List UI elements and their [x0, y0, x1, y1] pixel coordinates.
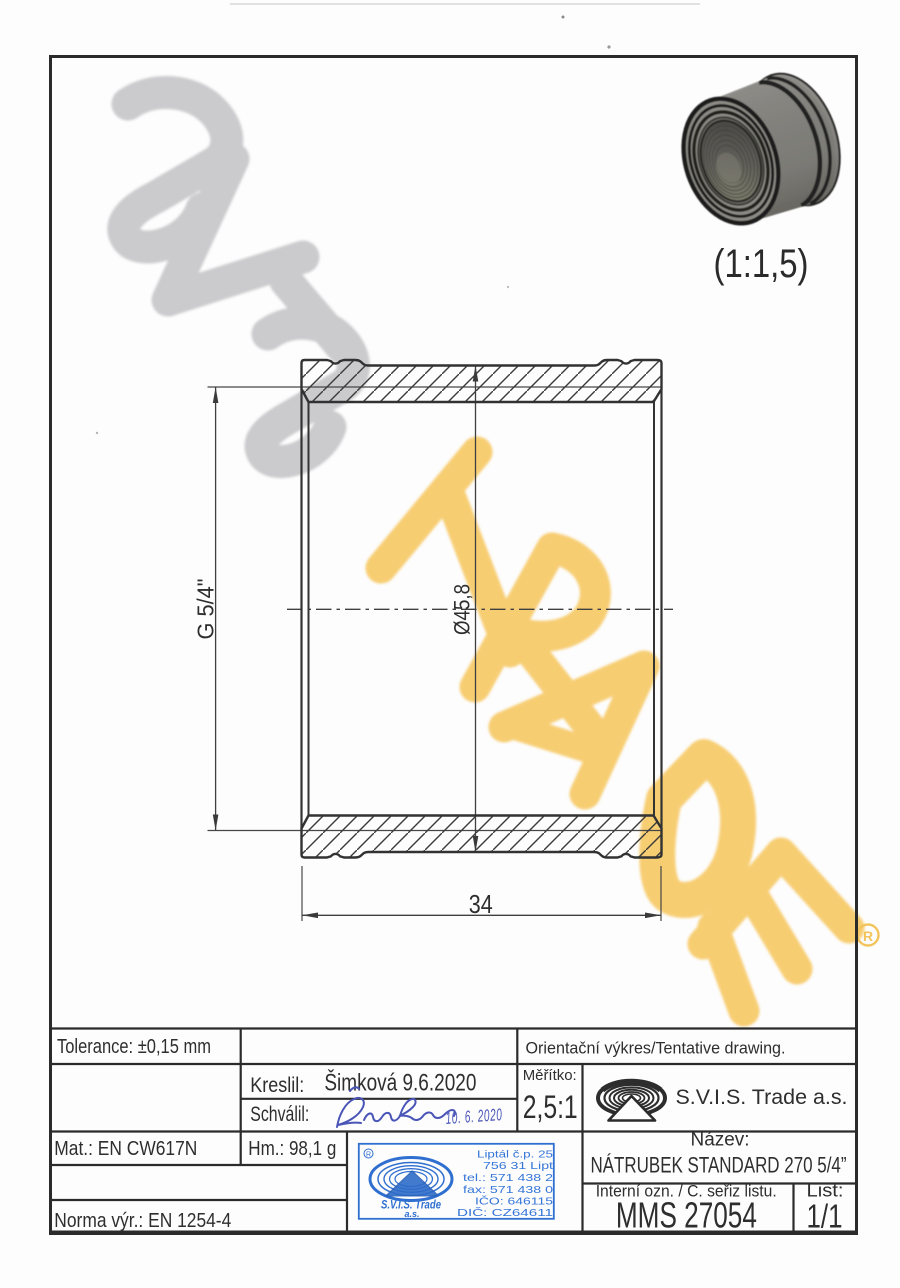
svg-text:10. 6. 2020: 10. 6. 2020: [445, 1105, 503, 1128]
svg-text:Ø45,8: Ø45,8: [450, 584, 475, 635]
svg-text:Kreslil:: Kreslil:: [250, 1074, 304, 1097]
svg-text:1/1: 1/1: [807, 1198, 843, 1235]
svg-text:34: 34: [469, 889, 493, 919]
svg-text:DIČ: CZ64611: DIČ: CZ64611: [457, 1206, 553, 1219]
svg-text:Měřítko:: Měřítko:: [523, 1067, 577, 1084]
svg-text:R: R: [863, 928, 873, 944]
svg-text:Tolerance: ±0,15 mm: Tolerance: ±0,15 mm: [57, 1036, 211, 1058]
svg-text:Norma výr.: EN 1254-4: Norma výr.: EN 1254-4: [54, 1210, 231, 1232]
svg-text:Mat.: EN CW617N: Mat.: EN CW617N: [54, 1138, 197, 1160]
svg-text:R: R: [366, 1152, 371, 1159]
svg-text:Název:: Název:: [691, 1130, 750, 1151]
svg-text:Šimková 9.6.2020: Šimková 9.6.2020: [324, 1069, 476, 1097]
svg-text:G 5/4": G 5/4": [193, 579, 219, 640]
svg-text:IČO: 646115: IČO: 646115: [475, 1195, 553, 1208]
svg-text:2,5:1: 2,5:1: [523, 1089, 578, 1125]
svg-text:fax: 571 438 0: fax: 571 438 0: [463, 1184, 553, 1196]
svg-text:NÁTRUBEK STANDARD 270 5/4”: NÁTRUBEK STANDARD 270 5/4”: [591, 1153, 847, 1178]
svg-text:MMS 27054: MMS 27054: [616, 1195, 757, 1236]
svg-text:Schválil:: Schválil:: [250, 1103, 309, 1126]
svg-text:Hm.: 98,1 g: Hm.: 98,1 g: [248, 1138, 336, 1160]
svg-text:(1:1,5): (1:1,5): [714, 242, 809, 286]
svg-text:a.s.: a.s.: [404, 1209, 419, 1219]
svg-text:Liptál č.p. 25: Liptál č.p. 25: [477, 1149, 553, 1161]
svg-text:S.V.I.S. Trade a.s.: S.V.I.S. Trade a.s.: [676, 1086, 848, 1109]
svg-text:756 31 Lipt: 756 31 Lipt: [483, 1160, 553, 1172]
svg-text:Orientační výkres/Tentative dr: Orientační výkres/Tentative drawing.: [526, 1039, 786, 1058]
svg-text:tel.: 571 438 2: tel.: 571 438 2: [463, 1172, 553, 1184]
